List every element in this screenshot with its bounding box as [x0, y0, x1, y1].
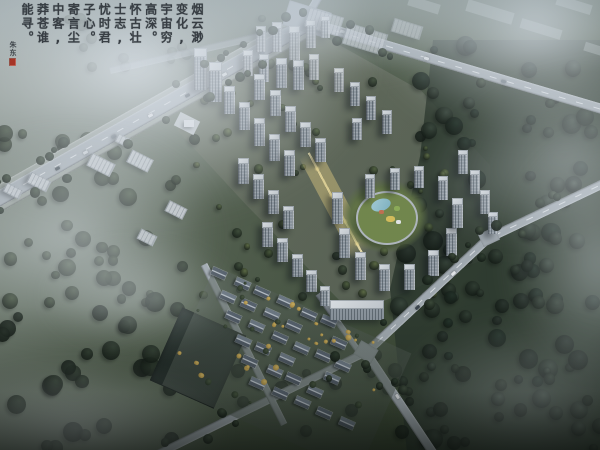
tree [423, 146, 428, 151]
tower [309, 54, 319, 80]
street-tree [378, 48, 387, 57]
tree [0, 125, 13, 143]
inscription-column: 变化, [175, 3, 189, 73]
distant-building [407, 0, 441, 14]
inscription-column: 士志, [113, 3, 127, 73]
inscription-column: 烟云渺 [190, 3, 204, 73]
tree [42, 251, 51, 260]
slab-roof [330, 300, 384, 309]
tree [460, 437, 470, 447]
tower [350, 82, 360, 106]
tower [480, 190, 490, 214]
townhouse [293, 341, 310, 354]
tower [365, 174, 375, 198]
tree [66, 248, 76, 258]
tree [119, 316, 137, 334]
tree [491, 392, 505, 406]
tree [61, 220, 73, 232]
tree [189, 134, 200, 145]
tree [298, 292, 307, 301]
tower-facade [292, 259, 303, 277]
tree [585, 295, 600, 310]
inscription-column: 寄言尘 [66, 3, 80, 73]
tower [366, 96, 376, 120]
tree [443, 318, 453, 328]
townhouse [211, 266, 228, 279]
street-tree [58, 137, 69, 148]
tower [379, 264, 390, 291]
tree [430, 46, 438, 54]
yellow-tree [353, 338, 358, 343]
tower [239, 102, 250, 130]
tower-roof [293, 60, 304, 67]
tower-roof [339, 228, 350, 235]
tower-facade [352, 123, 362, 140]
tower [339, 228, 350, 258]
tree [79, 429, 91, 441]
street-tree [332, 36, 342, 46]
tree [368, 77, 378, 87]
tower-facade [350, 87, 360, 106]
tree [569, 233, 585, 249]
tree [51, 271, 60, 280]
street-tree [62, 174, 71, 183]
tower [332, 192, 343, 224]
tower [276, 58, 287, 88]
street-tree [465, 242, 471, 248]
yellow-tree [198, 372, 206, 380]
tree [171, 175, 181, 185]
tower [334, 68, 344, 92]
tower-facade [339, 235, 350, 258]
townhouse [316, 407, 333, 420]
street-tree [346, 20, 355, 29]
tree [555, 335, 574, 354]
inscription-column: 能寻。 [20, 3, 34, 73]
tree [7, 395, 26, 414]
tower-facade [268, 195, 279, 214]
tower-facade [428, 256, 439, 276]
tree [2, 293, 18, 309]
tower-facade [269, 140, 280, 161]
tree [584, 125, 598, 139]
tower [404, 264, 415, 290]
tree [565, 60, 582, 77]
tree [119, 188, 137, 206]
yellow-tree [266, 296, 271, 301]
aerial-masterplan-rendering: 烟云渺 变化, 宇宙穷 高深。 怀古壮 士志, 忧时君 子心。 寄言尘 中客, … [0, 0, 600, 450]
tree [355, 333, 359, 337]
tree [440, 425, 449, 434]
tree [177, 261, 188, 272]
tree [145, 292, 165, 312]
tower-roof [276, 58, 287, 65]
tower-facade [254, 124, 265, 146]
tree [75, 375, 89, 389]
street-tree [240, 41, 247, 48]
street-tree [391, 378, 398, 385]
tree [122, 281, 137, 296]
tree [117, 294, 127, 304]
warehouse [126, 149, 154, 172]
tree [244, 243, 251, 250]
tree [96, 418, 112, 434]
tower [458, 150, 468, 174]
distant-building [465, 0, 514, 25]
tree [510, 265, 520, 275]
tower [414, 166, 424, 188]
tower-facade [238, 164, 249, 184]
street-tree [491, 220, 502, 231]
tower-facade [452, 205, 463, 228]
tower [289, 26, 300, 60]
tree [230, 390, 239, 399]
tower-facade [438, 181, 448, 200]
tower [470, 170, 480, 194]
townhouse [225, 311, 242, 324]
tower-facade [254, 80, 265, 100]
townhouse [285, 372, 302, 385]
tree [437, 331, 448, 342]
tree [521, 260, 533, 272]
street-tree [326, 375, 333, 382]
tree [44, 297, 55, 308]
tower-facade [253, 180, 264, 199]
inscription-column: 中客, [51, 3, 65, 73]
tower-facade [262, 228, 273, 247]
tree [13, 312, 23, 322]
street-tree [256, 29, 263, 36]
tower-facade [283, 211, 294, 229]
tower-roof [289, 26, 300, 33]
tree [532, 389, 551, 408]
tower-facade [289, 33, 300, 60]
street-tree [232, 420, 239, 427]
tower-facade [382, 115, 392, 134]
tower [300, 122, 311, 147]
tree [514, 403, 528, 417]
street-tree [123, 139, 133, 149]
tower [268, 190, 279, 214]
tower [438, 176, 448, 200]
tree [58, 259, 76, 277]
tower-facade [404, 270, 415, 290]
tower [352, 118, 362, 140]
tower-facade [315, 143, 326, 162]
tower-facade [306, 26, 316, 48]
tower-facade [379, 270, 390, 291]
tower-facade [320, 291, 330, 306]
street-tree [51, 147, 57, 153]
tree [255, 277, 260, 282]
tree [549, 232, 562, 245]
tree [522, 124, 532, 134]
townhouse [272, 331, 289, 344]
tower-facade [309, 60, 319, 80]
inscription-column: 高深。 [144, 3, 158, 73]
inscription-column: 怀古壮 [128, 3, 142, 73]
tree [102, 341, 120, 359]
inscription-column: 子心。 [82, 3, 96, 73]
tower [428, 250, 439, 276]
garden-feature [394, 206, 400, 211]
tower-roof [332, 192, 343, 199]
tree [223, 324, 229, 330]
townhouse [294, 396, 311, 409]
tower [253, 174, 264, 199]
townhouse [286, 319, 303, 332]
townhouse [235, 334, 252, 347]
street-tree [376, 382, 384, 390]
tree [495, 299, 509, 313]
street-tree [268, 26, 277, 35]
townhouse [240, 298, 257, 311]
tower [452, 198, 463, 228]
yellow-tree [314, 322, 319, 327]
tree [539, 258, 554, 273]
yellow-tree [372, 387, 376, 391]
garden-feature [396, 220, 401, 224]
tree [592, 418, 600, 435]
tree [212, 134, 220, 142]
tower-facade [366, 101, 376, 120]
tree [422, 344, 437, 359]
townhouse [272, 387, 289, 400]
calligrapher-signature: 朱东 [9, 41, 17, 57]
tree [543, 127, 554, 138]
tower [321, 16, 330, 38]
tree [248, 401, 252, 405]
tower-facade [321, 21, 330, 38]
tree [544, 373, 555, 384]
distant-building [519, 18, 562, 40]
tower [355, 252, 366, 280]
street-tree [203, 434, 214, 445]
tower-facade [293, 67, 304, 90]
street-tree [281, 12, 291, 22]
street-tree [535, 198, 545, 208]
tree [427, 362, 436, 371]
tower-facade [334, 73, 344, 92]
garden-feature [386, 216, 395, 222]
tower-facade [239, 108, 250, 130]
tower-facade [224, 92, 235, 114]
tower-facade [414, 171, 424, 188]
clubhouse [184, 120, 194, 127]
yellow-tree [370, 340, 375, 345]
inscription-column: 宇宙穷 [159, 3, 173, 73]
tower [390, 168, 400, 190]
tree [81, 348, 93, 360]
inscription-column: 忧时君 [97, 3, 111, 73]
townhouse [339, 416, 356, 429]
calligraphy-inscription: 烟云渺 变化, 宇宙穷 高深。 怀古壮 士志, 忧时君 子心。 寄言尘 中客, … [20, 3, 204, 73]
tree [488, 249, 503, 264]
tower [446, 228, 457, 256]
street-tree [553, 193, 561, 201]
tower [285, 106, 296, 132]
tree [412, 72, 430, 90]
tower-facade [284, 156, 295, 176]
tree [65, 286, 79, 300]
tree [532, 296, 545, 309]
red-seal-stamp [9, 58, 16, 66]
tower [306, 20, 316, 48]
street-tree [30, 187, 40, 197]
tree [75, 231, 91, 247]
tree [433, 402, 448, 417]
warehouse [164, 200, 187, 220]
street-tree [162, 116, 170, 124]
yellow-tree [344, 334, 352, 342]
tower-facade [276, 65, 287, 88]
tree [258, 15, 266, 23]
tower-roof [209, 62, 222, 71]
inscription-column: 莽苍谁 [35, 3, 49, 73]
tower [262, 222, 273, 247]
street-tree [422, 275, 432, 285]
tree [421, 122, 438, 139]
tree [24, 238, 33, 247]
tree [427, 87, 439, 99]
tower-facade [365, 179, 375, 198]
street-tree [424, 299, 435, 310]
tree [216, 204, 222, 210]
tree [546, 297, 564, 315]
tower-facade [270, 96, 281, 116]
tree [204, 377, 213, 386]
tree [196, 308, 200, 312]
yellow-tree [194, 360, 200, 366]
street-tree [235, 72, 245, 82]
tower [224, 86, 235, 114]
street-tree [387, 53, 393, 59]
tree [470, 109, 479, 118]
yellow-tree [314, 341, 319, 346]
street-tree [299, 8, 308, 17]
tree [41, 440, 53, 450]
tower [277, 238, 288, 262]
tower-facade [470, 175, 480, 194]
tree [495, 379, 507, 391]
tower-facade [306, 275, 317, 292]
tower [270, 90, 281, 116]
yellow-tree [307, 337, 311, 341]
street-tree [225, 79, 232, 86]
tower-facade [300, 128, 311, 147]
tree [338, 265, 348, 275]
tree [254, 164, 264, 174]
distant-building [555, 0, 592, 15]
tower-facade [285, 112, 296, 132]
tower [315, 138, 326, 162]
yellow-tree [320, 333, 324, 337]
tower [293, 60, 304, 90]
tower [320, 286, 330, 306]
tower-roof [452, 198, 463, 205]
tower [292, 254, 303, 277]
street-tree [205, 92, 215, 102]
tower-facade [355, 258, 366, 280]
tree [354, 400, 363, 409]
tree [37, 196, 47, 206]
yellow-tree [236, 352, 243, 359]
street-tree [365, 25, 375, 35]
path-light [313, 165, 321, 173]
tower-facade [458, 155, 468, 174]
tree [435, 209, 444, 218]
tree [447, 436, 461, 450]
slab-facade [330, 309, 384, 320]
townhouse [300, 308, 317, 321]
tree [61, 360, 77, 376]
tree [193, 162, 200, 169]
tree [395, 425, 409, 439]
tree [369, 261, 379, 271]
tower [238, 158, 249, 184]
tower [254, 74, 265, 100]
garden-feature [379, 210, 384, 214]
tree [52, 186, 68, 202]
tower-facade [390, 173, 400, 190]
townhouse [279, 352, 296, 365]
tree [457, 137, 471, 151]
midrise-slab [330, 300, 384, 320]
tree [589, 444, 598, 450]
tree [525, 171, 536, 182]
street-tree [380, 319, 387, 326]
tree [423, 231, 443, 251]
tree [532, 376, 543, 387]
warehouse [391, 18, 424, 40]
tree [4, 252, 18, 266]
tree [108, 255, 119, 266]
yellow-tree [323, 339, 329, 345]
street-tree [545, 99, 554, 108]
tower-facade [277, 243, 288, 262]
street-tree [448, 253, 456, 261]
tree [232, 228, 242, 238]
tower [306, 270, 317, 292]
tower [284, 150, 295, 176]
tree [521, 62, 537, 78]
street-tree [36, 156, 45, 165]
tower [254, 118, 265, 146]
tower [269, 134, 280, 161]
tree [463, 40, 477, 54]
tower [283, 206, 294, 229]
street-tree [161, 438, 169, 446]
yellow-tree [177, 350, 182, 355]
townhouse [219, 290, 236, 303]
tree [44, 375, 63, 394]
tree [94, 256, 104, 266]
tree [18, 129, 28, 139]
tower [382, 110, 392, 134]
tree [264, 249, 273, 258]
tree [92, 305, 108, 321]
tower-facade [332, 199, 343, 224]
